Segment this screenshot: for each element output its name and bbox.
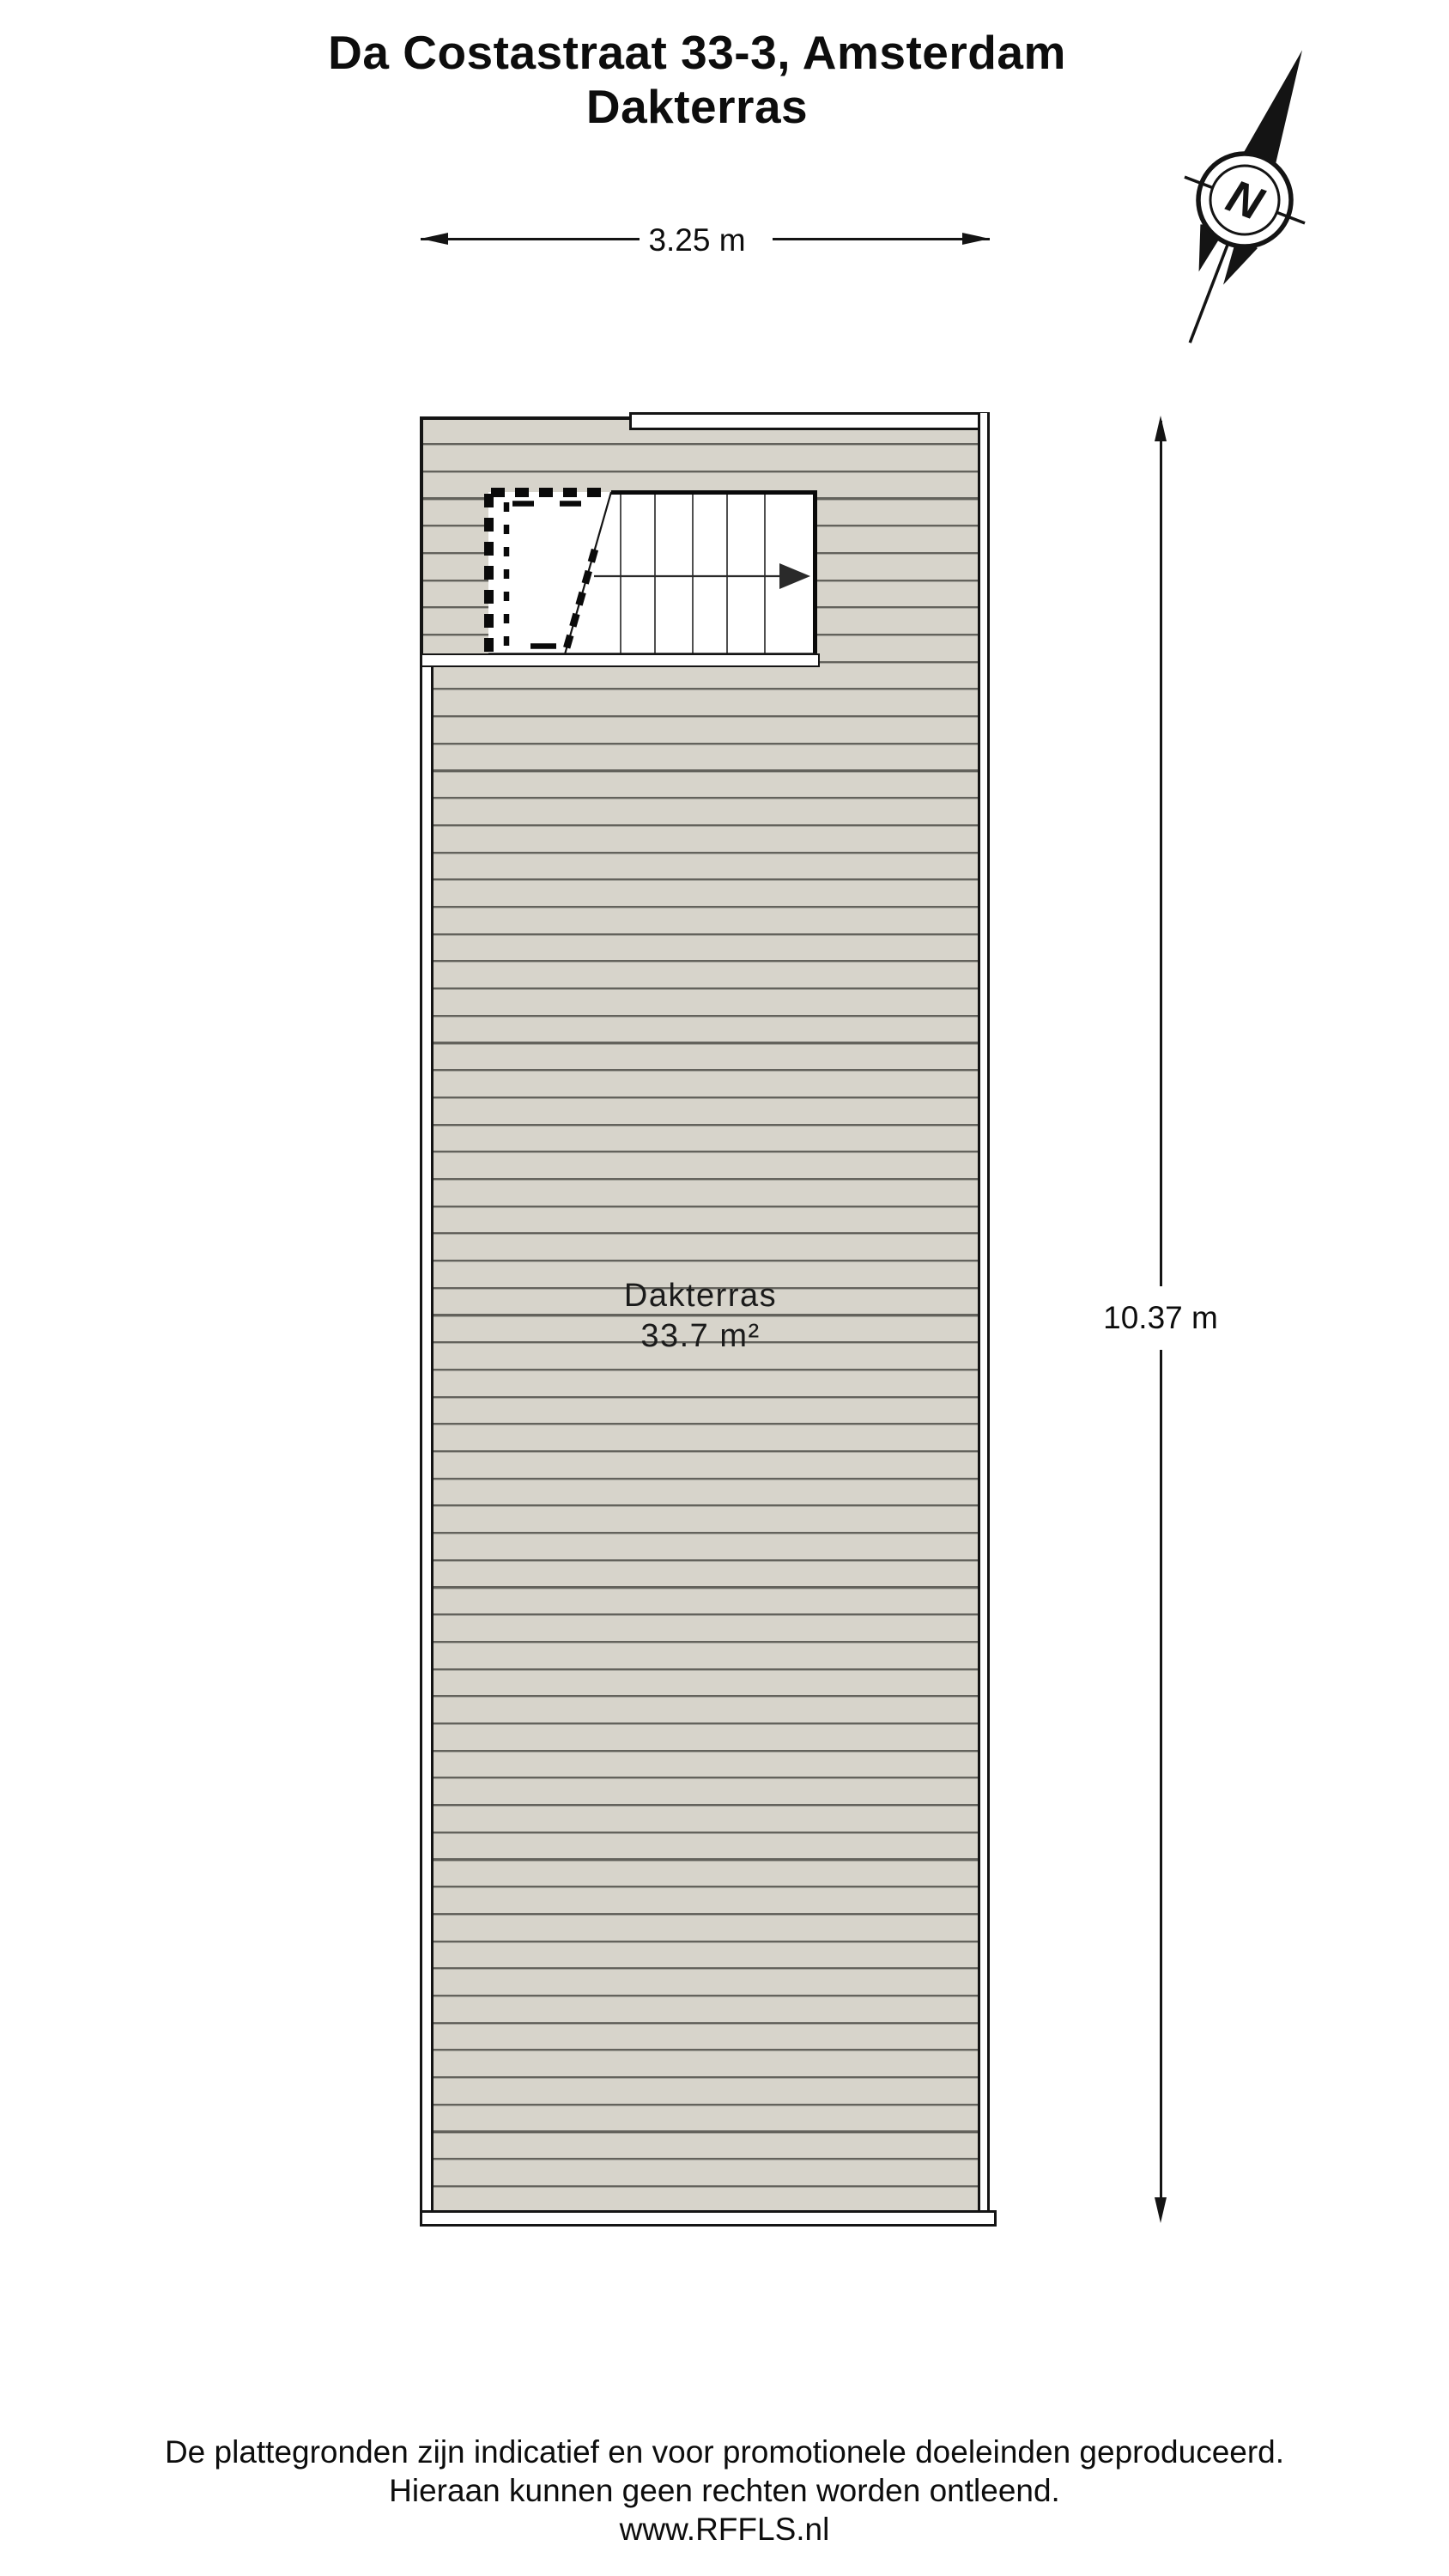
parapet-bottom: [420, 2210, 997, 2227]
wall-left-upper: [420, 416, 423, 655]
deck-plank-line: [422, 1695, 979, 1698]
deck-plank-line: [422, 1260, 979, 1262]
deck-plank-line: [422, 1042, 979, 1044]
deck-plank-line: [422, 1206, 979, 1208]
deck-plank-line: [422, 1886, 979, 1888]
deck-plank-line: [422, 2049, 979, 2051]
height-dimension-line: [1160, 421, 1162, 1286]
deck-plank-line: [422, 1232, 979, 1235]
room-name: Dakterras: [426, 1276, 975, 1316]
website-label: www.RFFLS.nl: [0, 2510, 1449, 2549]
width-dimension-label: 3.25 m: [648, 222, 745, 258]
deck-plank-line: [422, 1941, 979, 1943]
deck-plank-line: [422, 1995, 979, 1997]
deck-plank-line: [422, 2022, 979, 2025]
arrow-down-icon: [1155, 2197, 1167, 2223]
deck-plank-line: [422, 1178, 979, 1181]
deck-plank-line: [422, 1641, 979, 1643]
deck-plank-line: [422, 1858, 979, 1861]
arrow-up-icon: [1155, 416, 1167, 441]
arrow-right-icon: [962, 233, 990, 245]
deck-plank-line: [422, 2158, 979, 2160]
deck-plank-line: [422, 688, 979, 690]
deck-plank-line: [422, 1450, 979, 1453]
deck-plank-line: [422, 471, 979, 473]
deck-plank-line: [422, 824, 979, 827]
deck-plank-line: [422, 960, 979, 963]
deck-plank-line: [422, 1478, 979, 1480]
parapet-top: [629, 412, 990, 430]
arrow-left-icon: [421, 233, 448, 245]
deck-plank-line: [422, 443, 979, 446]
deck-plank-line: [422, 1396, 979, 1399]
room-area: 33.7 m²: [426, 1316, 975, 1357]
deck-plank-line: [422, 1722, 979, 1725]
staircase: [481, 485, 824, 670]
deck-plank-line: [422, 1504, 979, 1507]
deck-plank-line: [422, 852, 979, 854]
parapet-right: [978, 413, 990, 2216]
deck-plank-line: [422, 1750, 979, 1753]
deck-plank-line: [422, 1151, 979, 1153]
deck-plank-line: [422, 1015, 979, 1018]
wall-top-left: [420, 416, 632, 420]
deck-plank-line: [422, 1967, 979, 1970]
deck-plank-line: [422, 1913, 979, 1916]
parapet-left: [420, 653, 433, 2226]
deck-plank-line: [422, 715, 979, 718]
deck-plank-line: [422, 1423, 979, 1425]
deck-plank-line: [422, 1097, 979, 1099]
height-dimension-line: [1160, 1350, 1162, 2198]
deck-plank-line: [422, 987, 979, 990]
deck-plank-line: [422, 797, 979, 799]
north-compass-icon: N: [1149, 29, 1341, 369]
deck-plank-line: [422, 2104, 979, 2106]
deck-plank-line: [422, 2185, 979, 2188]
deck-plank-line: [422, 878, 979, 881]
deck-plank-line: [422, 1069, 979, 1072]
deck-plank-line: [422, 1777, 979, 1779]
deck-plank-line: [422, 2130, 979, 2133]
deck-plank-line: [422, 2076, 979, 2079]
width-dimension-line: [773, 238, 990, 240]
deck-plank-line: [422, 1532, 979, 1534]
deck-plank-line: [422, 1613, 979, 1616]
width-dimension-line: [421, 238, 640, 240]
deck-plank-line: [422, 743, 979, 745]
deck-plank-line: [422, 769, 979, 772]
disclaimer: De plattegronden zijn indicatief en voor…: [0, 2433, 1449, 2549]
disclaimer-line-2: Hieraan kunnen geen rechten worden ontle…: [0, 2471, 1449, 2510]
height-dimension-label: 10.37 m: [1103, 1300, 1218, 1336]
deck-plank-line: [422, 1559, 979, 1562]
deck-plank-line: [422, 1668, 979, 1671]
deck-plank-line: [422, 1804, 979, 1807]
deck-plank-line: [422, 1832, 979, 1834]
room-label: Dakterras 33.7 m²: [426, 1276, 975, 1357]
deck-plank-line: [422, 1586, 979, 1589]
floorplan-page: Da Costastraat 33-3, Amsterdam Dakterras…: [0, 0, 1449, 2576]
deck-plank-line: [422, 1124, 979, 1127]
deck-plank-line: [422, 1369, 979, 1371]
disclaimer-line-1: De plattegronden zijn indicatief en voor…: [0, 2433, 1449, 2471]
deck-plank-line: [422, 933, 979, 936]
deck-plank-line: [422, 906, 979, 908]
